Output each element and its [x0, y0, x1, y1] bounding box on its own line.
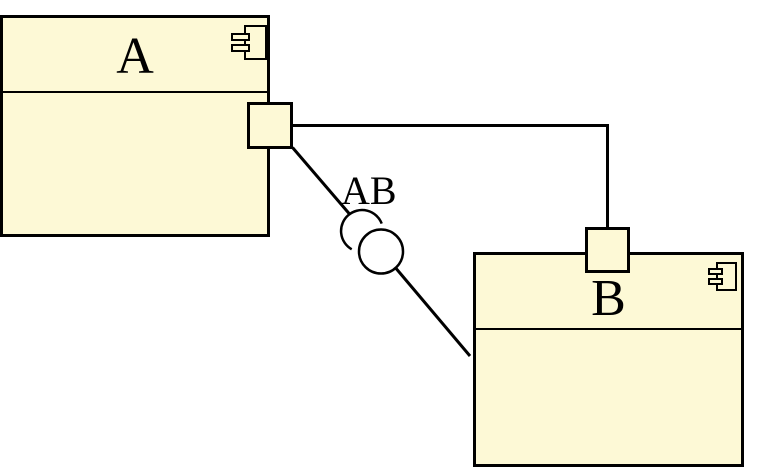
component-icon-body — [716, 262, 737, 291]
component-icon-body — [244, 25, 267, 60]
socket-icon — [341, 210, 382, 249]
component-icon — [231, 25, 267, 60]
component-B — [473, 252, 744, 467]
component-icon-tab — [231, 44, 250, 53]
component-A-header — [3, 18, 267, 93]
assembly-line-lower — [396, 268, 470, 356]
port-A — [247, 102, 293, 149]
component-A — [0, 15, 270, 237]
component-icon-tab — [708, 268, 723, 275]
ball-icon — [359, 230, 403, 274]
component-icon-tab — [708, 278, 723, 285]
component-icon — [708, 262, 738, 291]
port-B — [585, 227, 630, 273]
connector-label: AB — [341, 167, 397, 215]
port-connector-line — [292, 126, 608, 228]
component-icon-tab — [231, 33, 250, 42]
diagram-canvas: A B AB — [0, 0, 770, 473]
component-B-body — [476, 330, 741, 464]
component-A-body — [3, 93, 267, 234]
